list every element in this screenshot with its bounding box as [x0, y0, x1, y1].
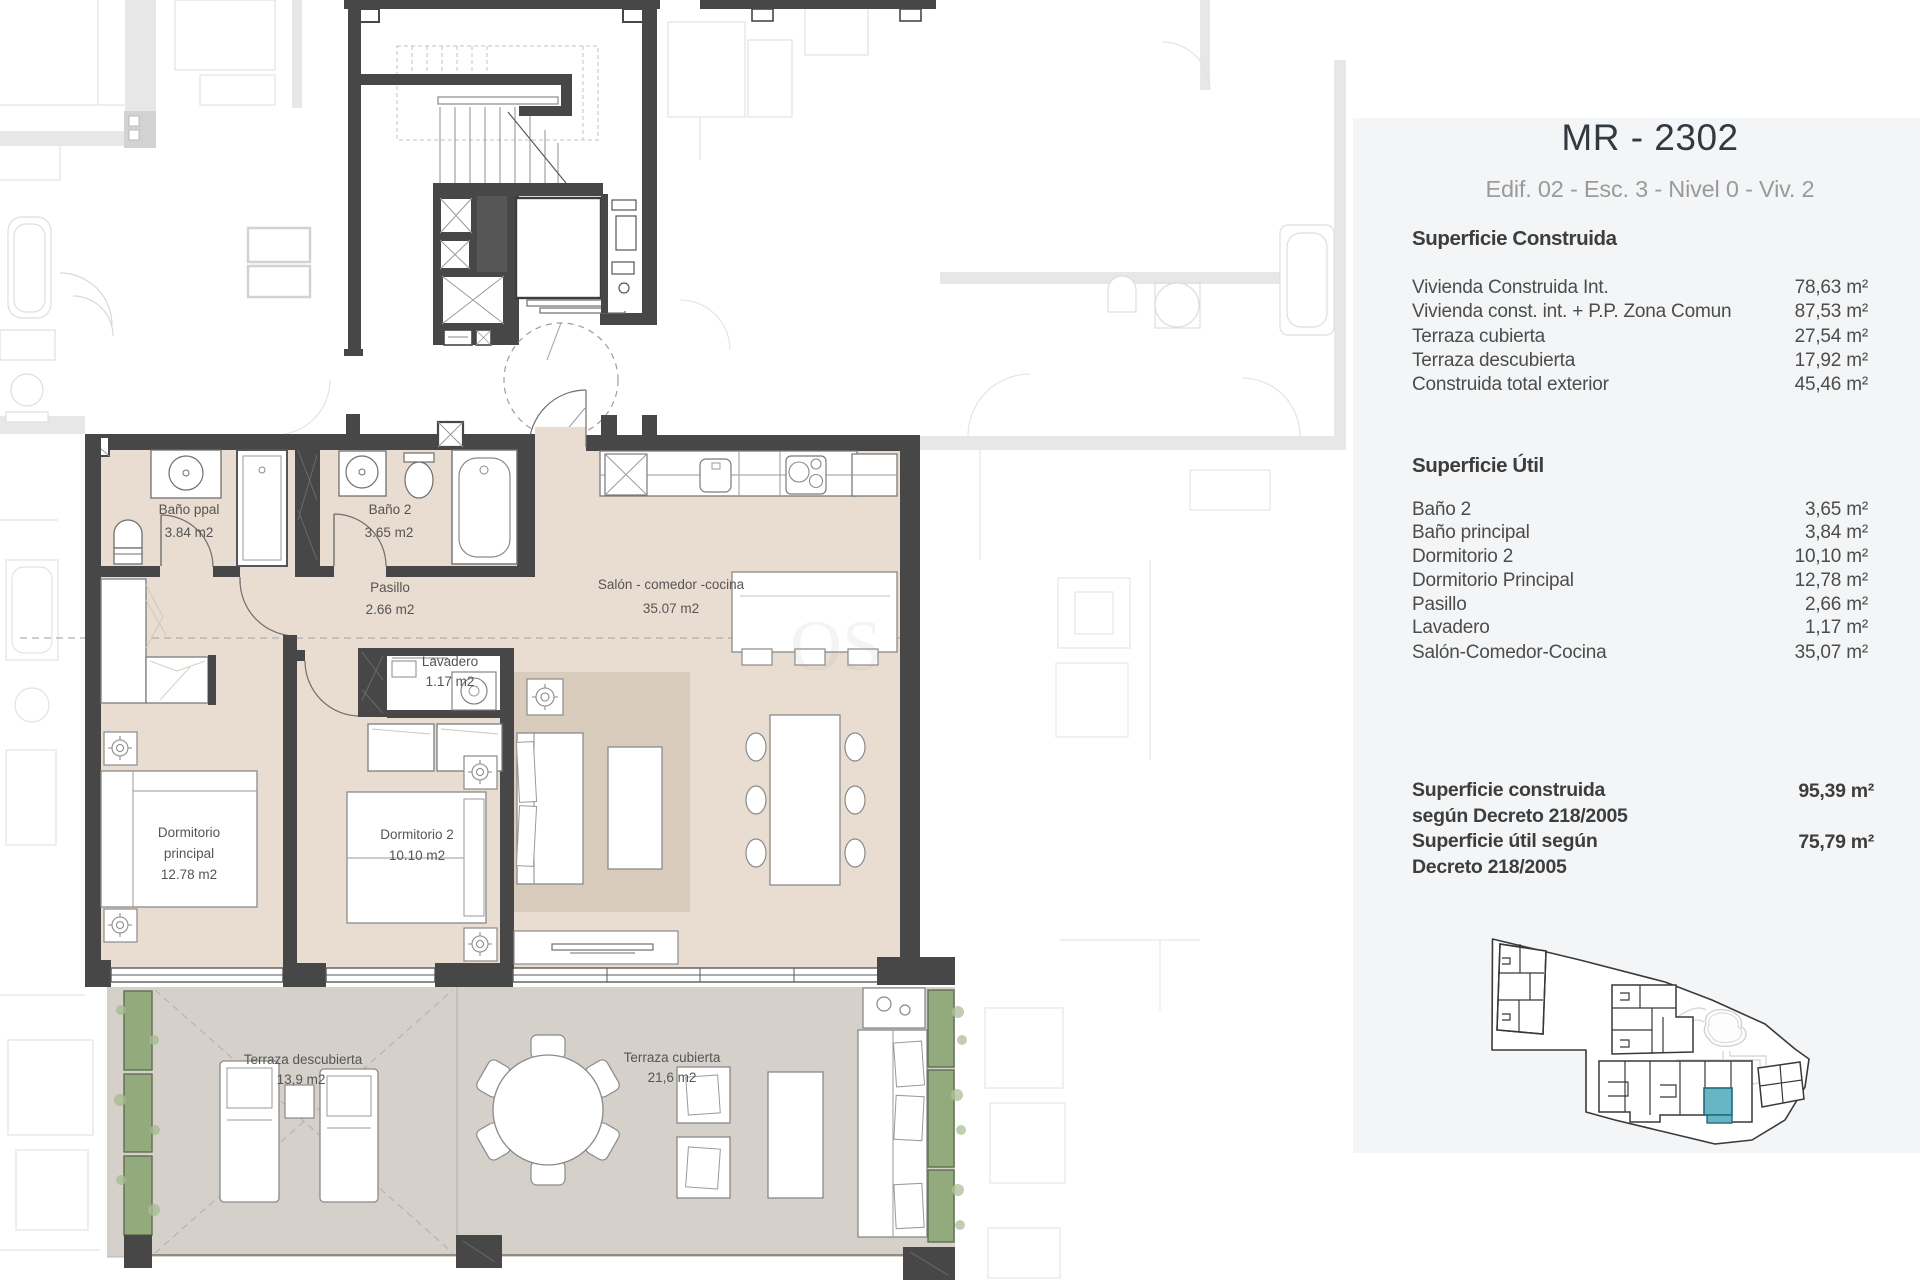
- svg-text:Lavadero: Lavadero: [422, 654, 478, 669]
- svg-text:1,17 m²: 1,17 m²: [1805, 617, 1868, 638]
- svg-text:10.10 m2: 10.10 m2: [389, 848, 445, 863]
- svg-text:Terraza descubierta: Terraza descubierta: [1412, 350, 1576, 371]
- svg-text:Pasillo: Pasillo: [370, 580, 410, 595]
- svg-text:Edif. 02 - Esc. 3 - Nivel 0 -: Edif. 02 - Esc. 3 - Nivel 0 - Viv. 2: [1486, 176, 1815, 202]
- svg-text:Superficie útil según: Superficie útil según: [1412, 830, 1597, 852]
- svg-text:35.07 m2: 35.07 m2: [643, 601, 699, 616]
- svg-text:3,65 m²: 3,65 m²: [1805, 499, 1868, 520]
- svg-text:OS: OS: [790, 606, 882, 686]
- svg-text:2,66 m²: 2,66 m²: [1805, 594, 1868, 615]
- svg-text:Terraza cubierta: Terraza cubierta: [624, 1050, 721, 1065]
- svg-text:Dormitorio: Dormitorio: [158, 825, 220, 840]
- svg-text:Construida total exterior: Construida total exterior: [1412, 374, 1610, 395]
- svg-text:13,9 m2: 13,9 m2: [277, 1072, 326, 1087]
- svg-text:Terraza descubierta: Terraza descubierta: [244, 1052, 363, 1067]
- svg-text:10,10 m²: 10,10 m²: [1795, 546, 1868, 567]
- svg-text:27,54 m²: 27,54 m²: [1795, 326, 1868, 347]
- svg-text:Baño 2: Baño 2: [369, 502, 412, 517]
- svg-text:21,6 m2: 21,6 m2: [648, 1070, 697, 1085]
- svg-text:45,46 m²: 45,46 m²: [1795, 374, 1868, 395]
- svg-text:Superficie Construida: Superficie Construida: [1412, 227, 1618, 250]
- svg-text:Salón - comedor -cocina: Salón - comedor -cocina: [598, 577, 745, 592]
- svg-text:Baño 2: Baño 2: [1412, 499, 1471, 520]
- svg-text:78,63 m²: 78,63 m²: [1795, 277, 1868, 298]
- svg-text:3,84 m²: 3,84 m²: [1805, 522, 1868, 543]
- svg-text:3.65 m2: 3.65 m2: [365, 525, 414, 540]
- svg-text:Dormitorio 2: Dormitorio 2: [380, 827, 454, 842]
- svg-text:Baño principal: Baño principal: [1412, 522, 1530, 543]
- svg-text:Pasillo: Pasillo: [1412, 594, 1467, 615]
- svg-text:Dormitorio Principal: Dormitorio Principal: [1412, 570, 1574, 591]
- svg-text:17,92 m²: 17,92 m²: [1795, 350, 1868, 371]
- svg-text:1.17 m2: 1.17 m2: [426, 674, 475, 689]
- svg-text:2.66 m2: 2.66 m2: [366, 602, 415, 617]
- svg-text:12.78 m2: 12.78 m2: [161, 867, 217, 882]
- svg-text:Decreto 218/2005: Decreto 218/2005: [1412, 856, 1567, 878]
- svg-text:Vivienda Construida Int.: Vivienda Construida Int.: [1412, 277, 1609, 298]
- svg-text:75,79 m²: 75,79 m²: [1798, 831, 1874, 853]
- svg-text:35,07 m²: 35,07 m²: [1795, 642, 1868, 663]
- svg-text:Vivienda const. int. + P.P. Zo: Vivienda const. int. + P.P. Zona Comun: [1412, 301, 1731, 322]
- svg-text:según Decreto 218/2005: según Decreto 218/2005: [1412, 805, 1628, 827]
- svg-text:MR - 2302: MR - 2302: [1561, 117, 1738, 158]
- svg-text:Salón-Comedor-Cocina: Salón-Comedor-Cocina: [1412, 642, 1607, 663]
- svg-text:3.84 m2: 3.84 m2: [165, 525, 214, 540]
- svg-text:Superficie construida: Superficie construida: [1412, 779, 1606, 801]
- svg-text:12,78 m²: 12,78 m²: [1795, 570, 1868, 591]
- svg-text:Dormitorio 2: Dormitorio 2: [1412, 546, 1513, 567]
- svg-text:Terraza cubierta: Terraza cubierta: [1412, 326, 1546, 347]
- svg-text:87,53 m²: 87,53 m²: [1795, 301, 1868, 322]
- svg-text:Baño ppal: Baño ppal: [159, 502, 220, 517]
- svg-text:Superficie Útil: Superficie Útil: [1412, 453, 1544, 477]
- svg-text:95,39 m²: 95,39 m²: [1798, 780, 1874, 802]
- svg-text:principal: principal: [164, 846, 214, 861]
- svg-text:Lavadero: Lavadero: [1412, 617, 1490, 638]
